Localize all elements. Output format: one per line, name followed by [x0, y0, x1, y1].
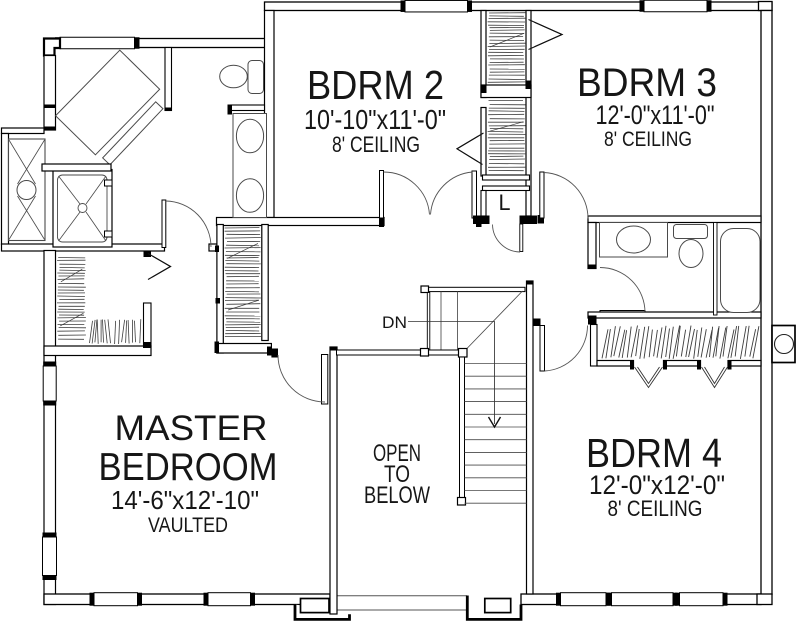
- svg-text:MASTER: MASTER: [115, 409, 268, 448]
- svg-text:14'-6"x12'-10": 14'-6"x12'-10": [111, 485, 259, 515]
- svg-text:BELOW: BELOW: [364, 482, 430, 509]
- svg-text:8' CEILING: 8' CEILING: [604, 128, 692, 151]
- svg-text:BDRM 2: BDRM 2: [307, 62, 444, 108]
- svg-text:DN: DN: [382, 313, 407, 332]
- svg-text:12'-0"x11'-0": 12'-0"x11'-0": [596, 100, 715, 130]
- svg-text:BEDROOM: BEDROOM: [99, 446, 278, 489]
- svg-text:VAULTED: VAULTED: [148, 514, 228, 537]
- svg-text:BDRM 3: BDRM 3: [577, 61, 717, 105]
- svg-text:L: L: [499, 190, 511, 215]
- svg-text:10'-10"x11'-0": 10'-10"x11'-0": [304, 104, 446, 135]
- svg-text:8' CEILING: 8' CEILING: [608, 496, 703, 521]
- svg-text:8' CEILING: 8' CEILING: [332, 132, 420, 157]
